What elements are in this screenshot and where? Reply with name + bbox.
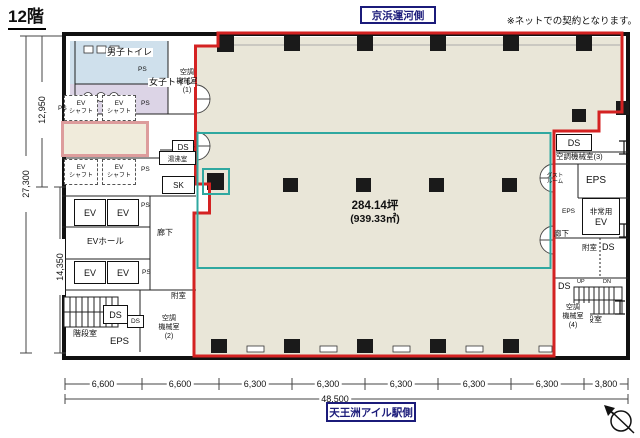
room-ac-machine-2: 空調 機械室 (2) — [150, 314, 188, 341]
room-ev-hall: EVホール — [87, 237, 124, 246]
kaidan-left: 階段室 — [72, 330, 98, 338]
ds-right-3: DS — [558, 282, 571, 291]
eps-left: EPS — [110, 337, 129, 347]
corridor-left: 廊下 — [157, 229, 173, 237]
room-yuwakashi: 湯沸室 — [159, 151, 196, 165]
pink-outlined-room — [61, 121, 149, 157]
dim-seg-8: 3,800 — [593, 379, 620, 389]
station-side-label: 天王洲アイル駅側 — [326, 402, 416, 422]
ev-shaft-line2: シャフト — [65, 108, 97, 116]
north-compass-icon — [604, 405, 634, 433]
ps-label-7: PS — [142, 270, 151, 277]
room-ac-machine-4: 空調 機械室 (4) — [556, 303, 590, 330]
page-title: 12階 — [8, 2, 46, 30]
ac1-line2: 機械室 — [172, 77, 202, 86]
dim-seg-1: 6,600 — [90, 379, 117, 389]
dim-seg-5: 6,300 — [388, 379, 415, 389]
ev-box-3: EV — [74, 261, 106, 284]
ev-shaft-3: EV シャフト — [64, 159, 98, 185]
dim-left-14350: 14,350 — [55, 239, 65, 295]
ps-label-6: PS — [141, 203, 150, 210]
ev-shaft-4: EV シャフト — [102, 159, 136, 185]
ev-shaft-line1: EV — [65, 100, 97, 108]
ds-right-2: DS — [602, 243, 615, 252]
contract-note: ※ネットでの契約となります。 — [507, 13, 637, 27]
dim-seg-7: 6,300 — [534, 379, 561, 389]
floorplan-page: 12階 京浜運河側 ※ネットでの契約となります。 男子トイレ 女子トイレ 空調 … — [0, 0, 640, 438]
dim-left-12950: 12,950 — [37, 82, 47, 138]
room-sk: SK — [162, 176, 195, 194]
stairs-dn-label: DN — [603, 280, 611, 286]
fushitsu-right: 附室 — [582, 244, 597, 252]
ev-box-4: EV — [107, 261, 139, 284]
room-ac-machine-3: 空調機械室(3) — [556, 153, 603, 161]
eps-right: EPS — [586, 176, 606, 186]
dim-seg-3: 6,300 — [242, 379, 269, 389]
ps-label-5: PS — [141, 167, 150, 174]
stairs-up-label: UP — [577, 280, 585, 286]
room-ac-machine-1: 空調 機械室 (1) — [172, 68, 202, 95]
ac1-line1: 空調 — [172, 68, 202, 77]
dim-seg-4: 6,300 — [315, 379, 342, 389]
ac1-line3: (1) — [172, 86, 202, 95]
corridor-right: 廊下 — [554, 230, 569, 238]
room-emergency-ev: 非常用 EV — [582, 198, 620, 235]
ps-label-1: PS — [58, 106, 67, 113]
dim-left-27300: 27,300 — [21, 156, 31, 212]
ev-shaft-1: EV シャフト — [64, 95, 98, 121]
ds-box-left-1: DS — [103, 305, 128, 324]
ds-box-left-2: DS — [127, 315, 144, 328]
fushitsu-left: 附室 — [171, 292, 186, 300]
ps-label-3: PS — [141, 101, 150, 108]
dim-seg-6: 6,300 — [461, 379, 488, 389]
dim-seg-2: 6,600 — [167, 379, 194, 389]
ev-box-1: EV — [74, 199, 106, 226]
room-dust: ダスト ルーム — [544, 173, 566, 185]
canal-side-label: 京浜運河側 — [360, 6, 436, 24]
eps-right-small: EPS — [562, 209, 575, 216]
ev-box-2: EV — [107, 199, 139, 226]
ds-box-right-1: DS — [556, 134, 592, 151]
ev-shaft-2: EV シャフト — [102, 95, 136, 121]
area-sqm: (939.33㎡) — [300, 211, 450, 226]
room-mens-toilet: 男子トイレ — [106, 48, 153, 57]
ps-label-2: PS — [138, 67, 147, 74]
